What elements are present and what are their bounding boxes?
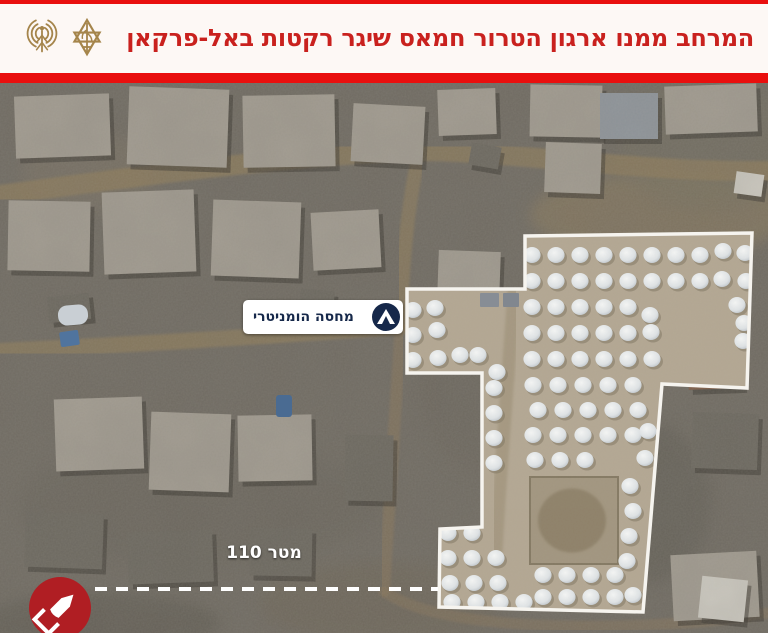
distance-label: 110 מטר: [214, 543, 314, 563]
tent-icon: [372, 303, 400, 331]
idf-emblem-logo: [69, 17, 105, 59]
headline: המרחב ממנו ארגון הטרור חמאס שיגר רקטות ב…: [126, 4, 754, 73]
header-logos: [24, 17, 105, 59]
infographic: המרחב ממנו ארגון הטרור חמאס שיגר רקטות ב…: [0, 0, 768, 633]
satellite-map: מחסה הומניטרי 110 מטר: [0, 83, 768, 633]
idf-spokesperson-radio-logo: [24, 17, 60, 59]
shelter-label: מחסה הומניטרי: [243, 300, 403, 334]
satellite-scene: [0, 83, 768, 633]
header: המרחב ממנו ארגון הטרור חמאס שיגר רקטות ב…: [0, 4, 768, 73]
red-divider: [0, 73, 768, 83]
shelter-label-text: מחסה הומניטרי: [253, 309, 354, 325]
